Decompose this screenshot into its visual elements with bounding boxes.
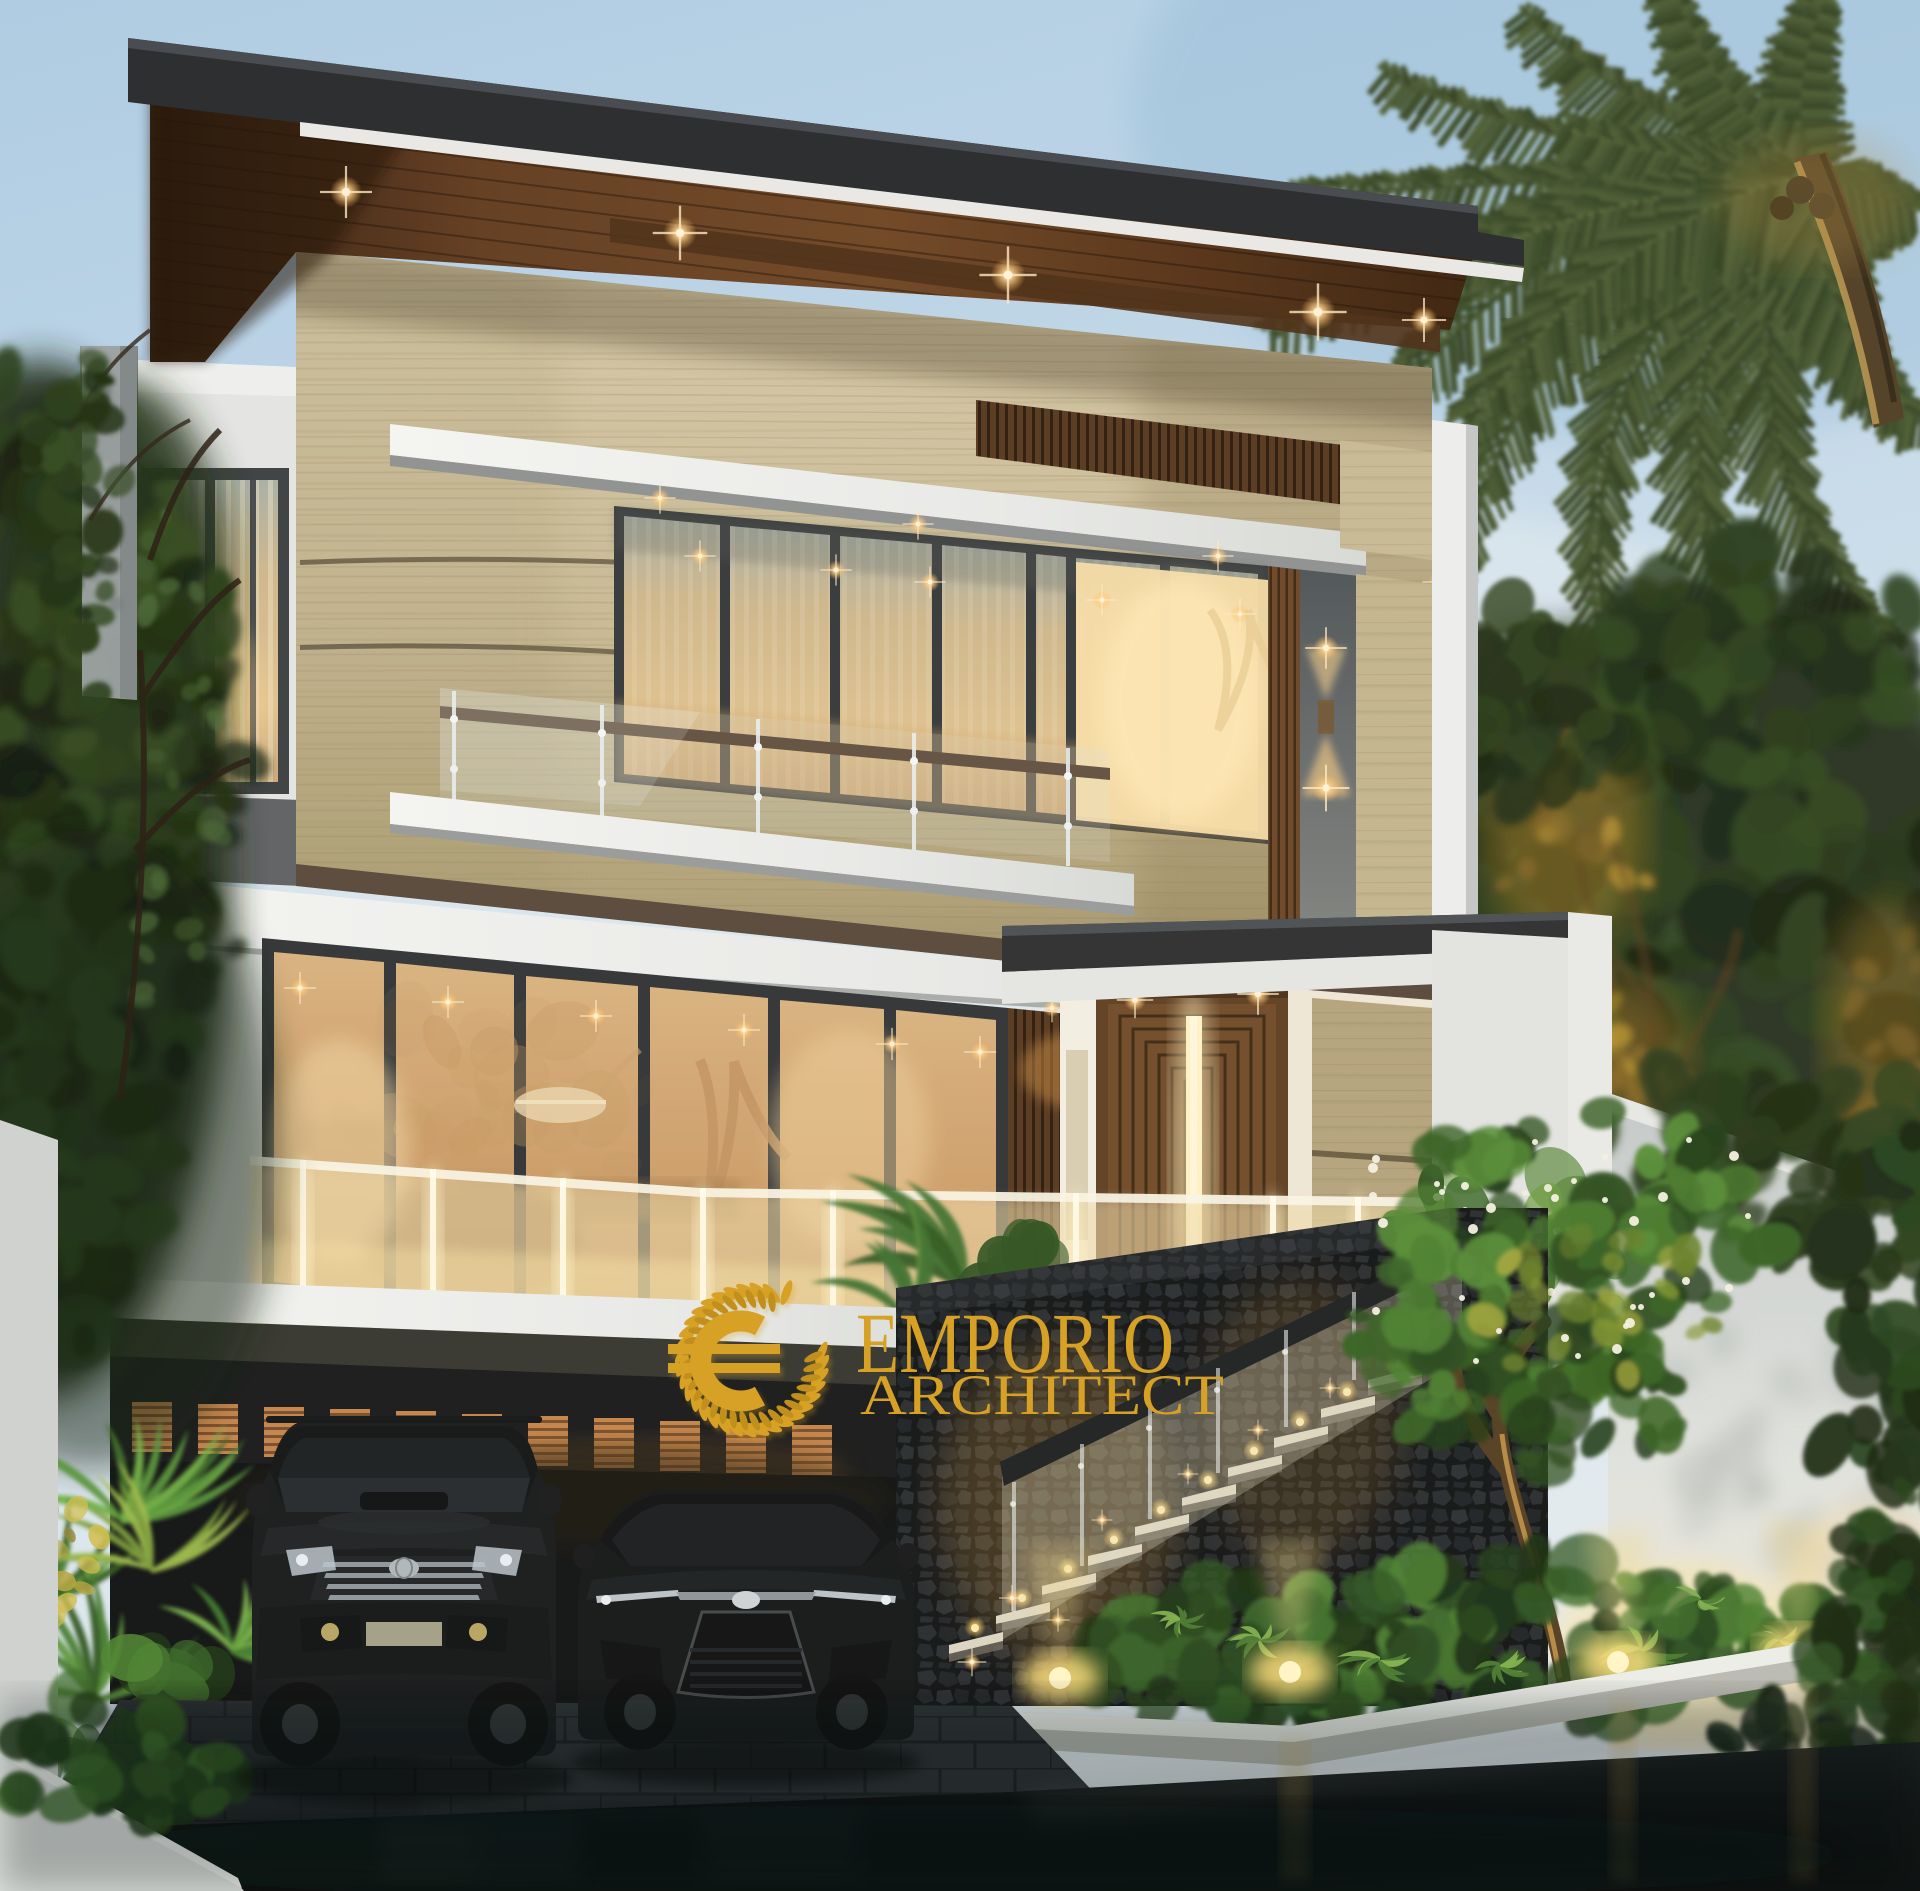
svg-text:ARCHITECT: ARCHITECT [860,1364,1224,1427]
